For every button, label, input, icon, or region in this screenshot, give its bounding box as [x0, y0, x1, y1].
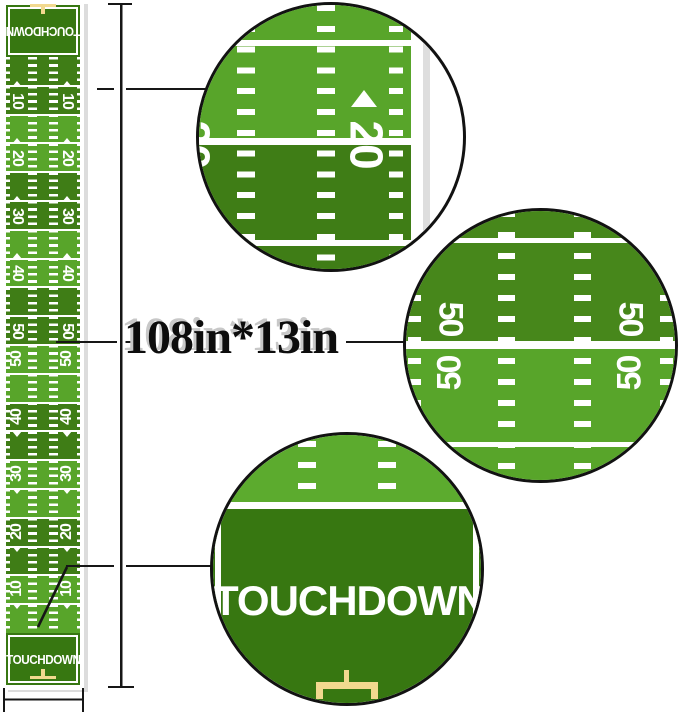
yard-number-20: 20	[7, 520, 27, 544]
yard-number-50: 50	[7, 319, 27, 343]
yard-number-40: 40	[7, 261, 27, 285]
yard-number-10: 10	[7, 89, 27, 113]
product-dimension-diagram: TOUCHDOWN 101010102020202030303030404040…	[0, 0, 679, 713]
yard-number-50: 50	[57, 319, 77, 343]
football-field-runner: TOUCHDOWN 101010102020202030303030404040…	[2, 0, 84, 690]
yard-number-text: 20	[58, 150, 76, 166]
yard-number-30: 30	[57, 204, 77, 228]
goalpost-crossbar-icon	[316, 682, 378, 689]
yard-number-text: 10	[8, 581, 26, 597]
yard-number-20-partial: 20	[196, 108, 216, 180]
hash-column-inner-right	[49, 57, 58, 633]
yard-line	[6, 286, 80, 288]
direction-arrow-icon	[12, 603, 22, 609]
yard-number-text: 50	[58, 323, 76, 339]
direction-arrow-icon	[62, 431, 72, 437]
yard-number-10: 10	[7, 577, 27, 601]
goal-line	[213, 502, 481, 509]
yard-number-50: 50	[432, 351, 468, 395]
yard-number-text: 10	[58, 581, 76, 597]
yard-number-50: 50	[612, 351, 648, 395]
fifty-yard-line	[406, 341, 675, 349]
direction-arrow-icon	[12, 488, 22, 494]
yard-number-text: 50	[8, 323, 26, 339]
hash-column	[237, 5, 255, 269]
direction-arrow-icon	[12, 253, 22, 259]
direction-arrow-icon	[62, 253, 72, 259]
touchdown-label: TOUCHDOWN	[213, 577, 481, 625]
hash-column	[298, 441, 316, 499]
hash-column	[378, 441, 396, 499]
direction-arrow-icon	[12, 81, 22, 87]
yard-number-50: 50	[612, 296, 648, 340]
yard-line	[6, 171, 80, 173]
yard-line	[406, 238, 675, 243]
yard-number-text: 50	[8, 351, 26, 367]
yard-line	[6, 229, 80, 231]
size-label: 108in*13in	[124, 311, 348, 365]
yard-number-50: 50	[57, 347, 77, 371]
direction-arrow-icon	[62, 488, 72, 494]
yard-number-10: 10	[57, 89, 77, 113]
yard-number-20: 20	[345, 108, 389, 180]
direction-arrow-icon	[12, 196, 22, 202]
field-area-light	[213, 435, 481, 505]
detail-circle-endzone: TOUCHDOWN	[210, 432, 484, 706]
yard-number-40: 40	[57, 261, 77, 285]
yard-number-text: 10	[8, 93, 26, 109]
yard-number-text: 30	[8, 466, 26, 482]
direction-arrow-icon	[62, 81, 72, 87]
yard-number-text: 10	[58, 93, 76, 109]
yard-number-20: 20	[57, 146, 77, 170]
goalpost-bottom-crossbar-icon	[30, 676, 56, 679]
direction-arrow-icon	[12, 138, 22, 144]
yard-number-20: 20	[57, 520, 77, 544]
endzone-bottom-label: TOUCHDOWN	[6, 652, 80, 667]
yard-line	[6, 402, 80, 404]
yard-number-text: 30	[8, 208, 26, 224]
yard-line	[6, 517, 80, 519]
playfield: 1010101020202020303030304040404050505050	[6, 57, 80, 633]
goalpost-leg-icon	[371, 688, 378, 699]
yard-number-10: 10	[57, 577, 77, 601]
yard-line	[6, 315, 80, 317]
direction-arrow-icon	[62, 546, 72, 552]
yard-number-50: 50	[432, 296, 468, 340]
goalpost-leg-icon	[316, 688, 323, 699]
yard-number-text: 40	[58, 265, 76, 281]
yard-line	[199, 240, 411, 246]
yard-number-text: 30	[58, 208, 76, 224]
yard-line	[6, 344, 80, 346]
yard-number-text: 40	[58, 409, 76, 425]
hash-column-inner-left	[28, 57, 37, 633]
goalpost-top-stem-icon	[41, 6, 45, 14]
yard-number-30: 30	[7, 462, 27, 486]
yard-line	[6, 373, 80, 375]
yard-number-50: 50	[7, 347, 27, 371]
yard-line	[6, 114, 80, 116]
yard-number-30: 30	[7, 204, 27, 228]
hash-column	[574, 211, 591, 480]
yard-line	[6, 574, 80, 576]
direction-arrow-icon	[62, 196, 72, 202]
direction-arrow-icon	[351, 90, 377, 107]
yard-number-40: 40	[57, 405, 77, 429]
yard-number-text: 40	[8, 409, 26, 425]
yard-number-text: 20	[8, 524, 26, 540]
direction-arrow-icon	[12, 546, 22, 552]
yard-number-text: 20	[8, 150, 26, 166]
direction-arrow-icon	[62, 603, 72, 609]
hash-column-left-edge	[6, 57, 10, 633]
yard-number-30: 30	[57, 462, 77, 486]
yard-number-40: 40	[7, 405, 27, 429]
yard-number-20: 20	[7, 146, 27, 170]
hash-column	[317, 5, 335, 269]
hash-column-right-edge	[77, 57, 81, 633]
yard-line	[199, 40, 411, 46]
endzone-top-label: TOUCHDOWN	[6, 24, 80, 39]
hash-column	[498, 211, 515, 480]
direction-arrow-icon	[12, 431, 22, 437]
direction-arrow-icon	[62, 138, 72, 144]
yard-number-text: 40	[8, 265, 26, 281]
hash-column-edge	[660, 211, 673, 480]
yard-number-text: 50	[58, 351, 76, 367]
yard-line	[6, 459, 80, 461]
yard-number-text: 20	[58, 524, 76, 540]
yard-number-text: 30	[58, 466, 76, 482]
